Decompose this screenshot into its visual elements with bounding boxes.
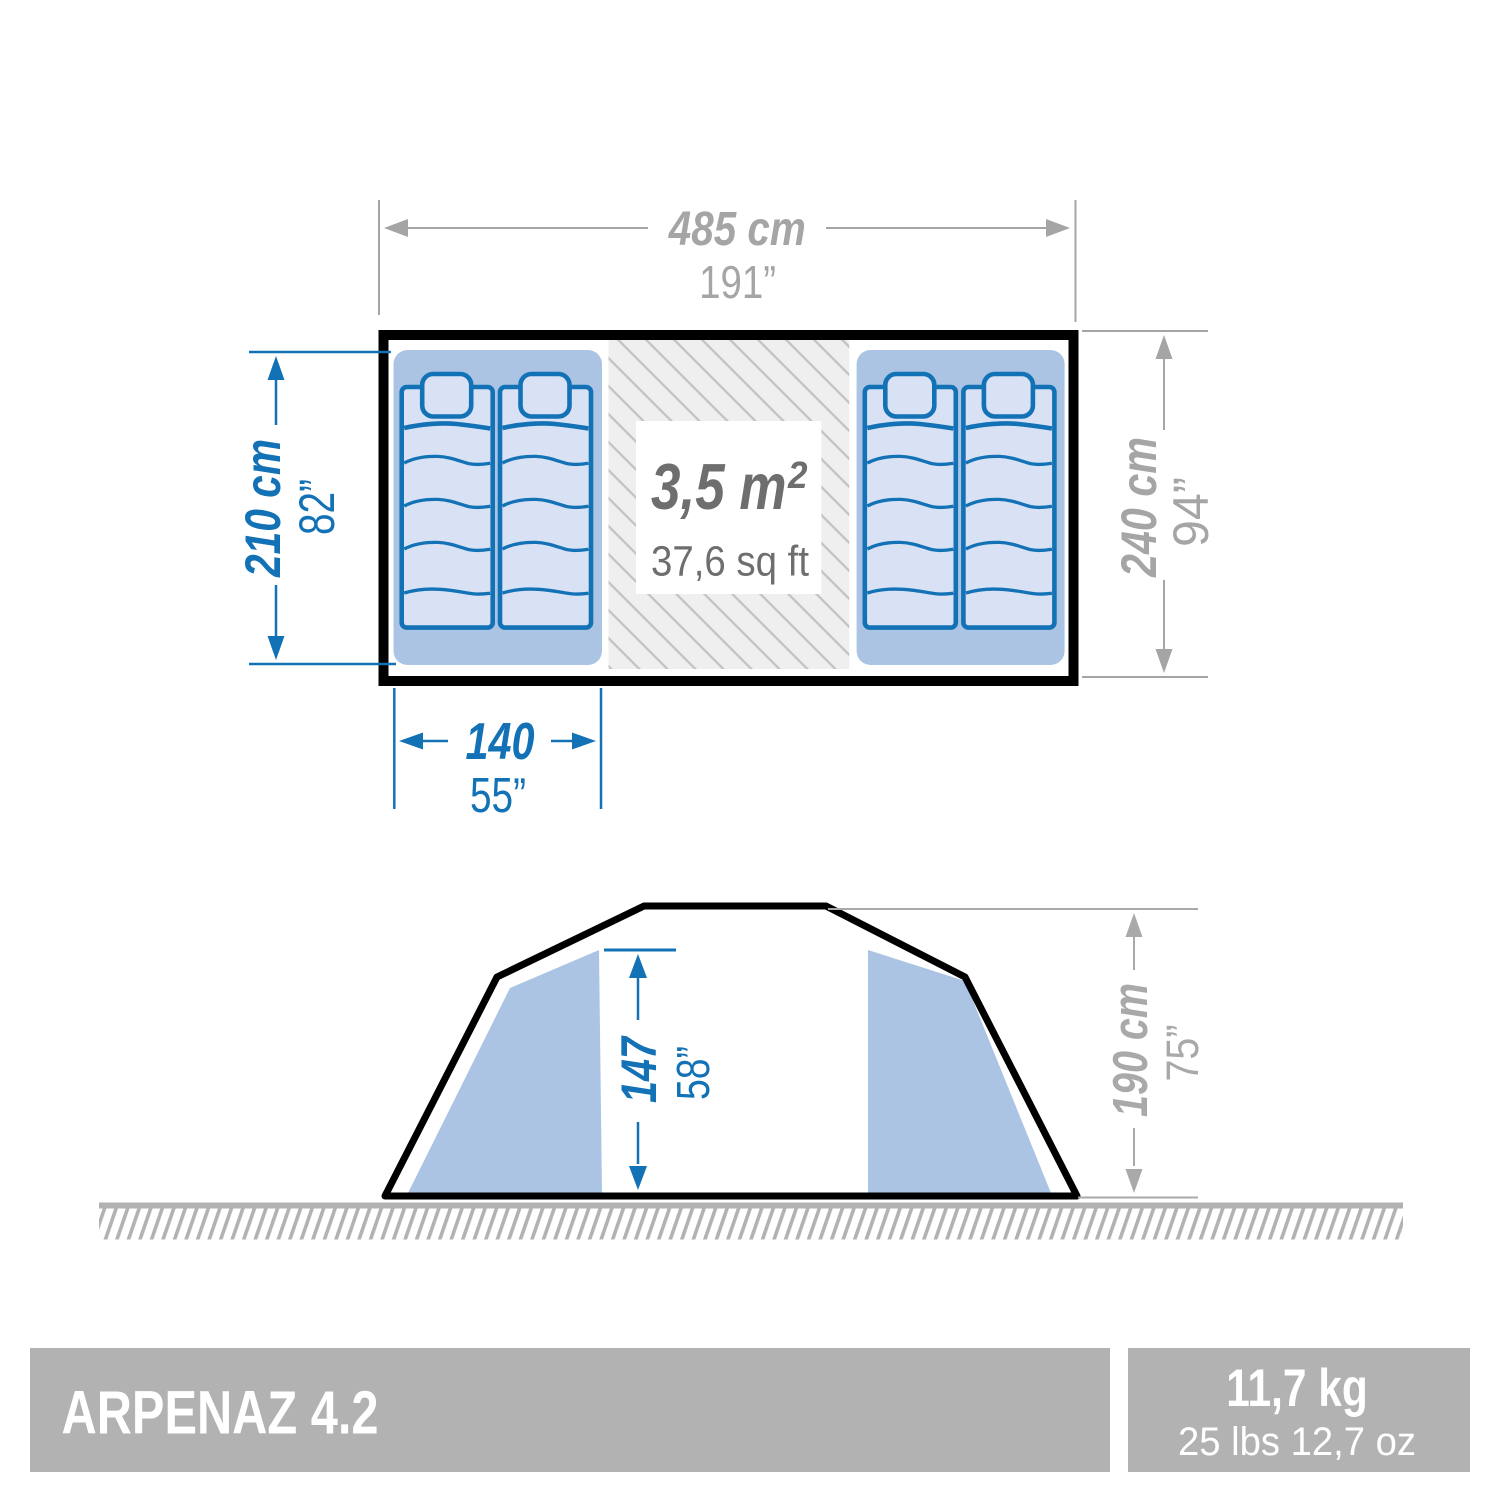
svg-text:190 cm: 190 cm <box>1104 983 1158 1117</box>
svg-text:94”: 94” <box>1163 477 1219 547</box>
svg-text:210 cm: 210 cm <box>235 439 291 578</box>
svg-text:ARPENAZ 4.2: ARPENAZ 4.2 <box>62 1379 379 1447</box>
svg-text:140: 140 <box>466 713 535 771</box>
svg-text:240 cm: 240 cm <box>1111 437 1167 578</box>
svg-text:37,6 sq ft: 37,6 sq ft <box>651 538 809 586</box>
svg-text:485 cm: 485 cm <box>668 203 806 256</box>
svg-text:55”: 55” <box>470 769 526 823</box>
svg-text:2: 2 <box>787 455 807 497</box>
svg-text:25 lbs 12,7 oz: 25 lbs 12,7 oz <box>1178 1420 1416 1464</box>
svg-text:191”: 191” <box>699 256 776 308</box>
svg-text:11,7 kg: 11,7 kg <box>1226 1359 1368 1418</box>
svg-text:75”: 75” <box>1157 1025 1208 1082</box>
svg-text:58”: 58” <box>667 1046 719 1100</box>
svg-text:3,5 m: 3,5 m <box>651 450 787 523</box>
svg-text:82”: 82” <box>289 479 345 535</box>
svg-text:147: 147 <box>611 1035 667 1103</box>
